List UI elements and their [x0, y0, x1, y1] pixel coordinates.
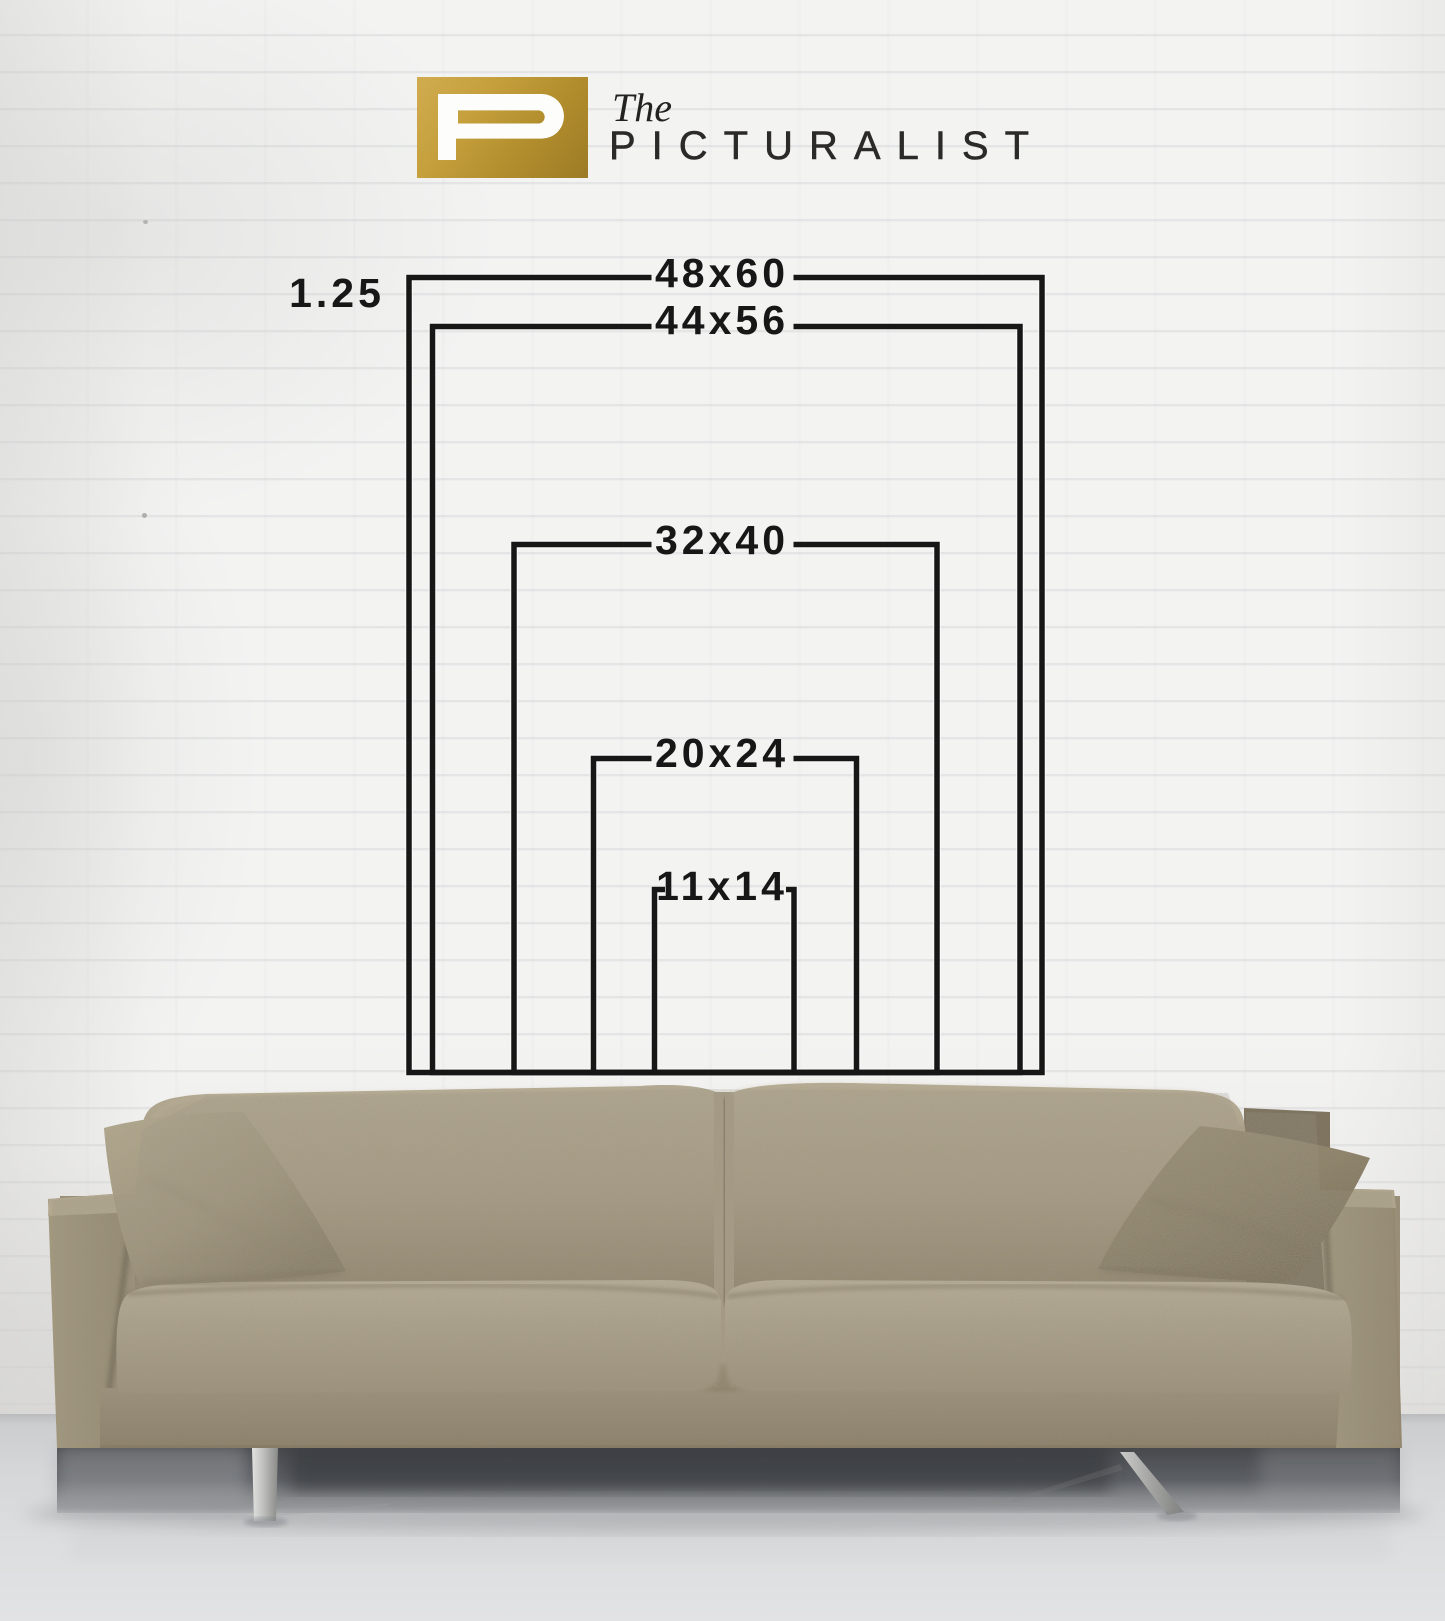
svg-text:20x24: 20x24 [655, 730, 789, 776]
svg-text:44x56: 44x56 [655, 297, 789, 343]
svg-text:11x14: 11x14 [656, 863, 788, 909]
svg-text:32x40: 32x40 [655, 517, 789, 563]
svg-text:1.25: 1.25 [289, 270, 385, 316]
svg-text:48x60: 48x60 [655, 250, 789, 296]
